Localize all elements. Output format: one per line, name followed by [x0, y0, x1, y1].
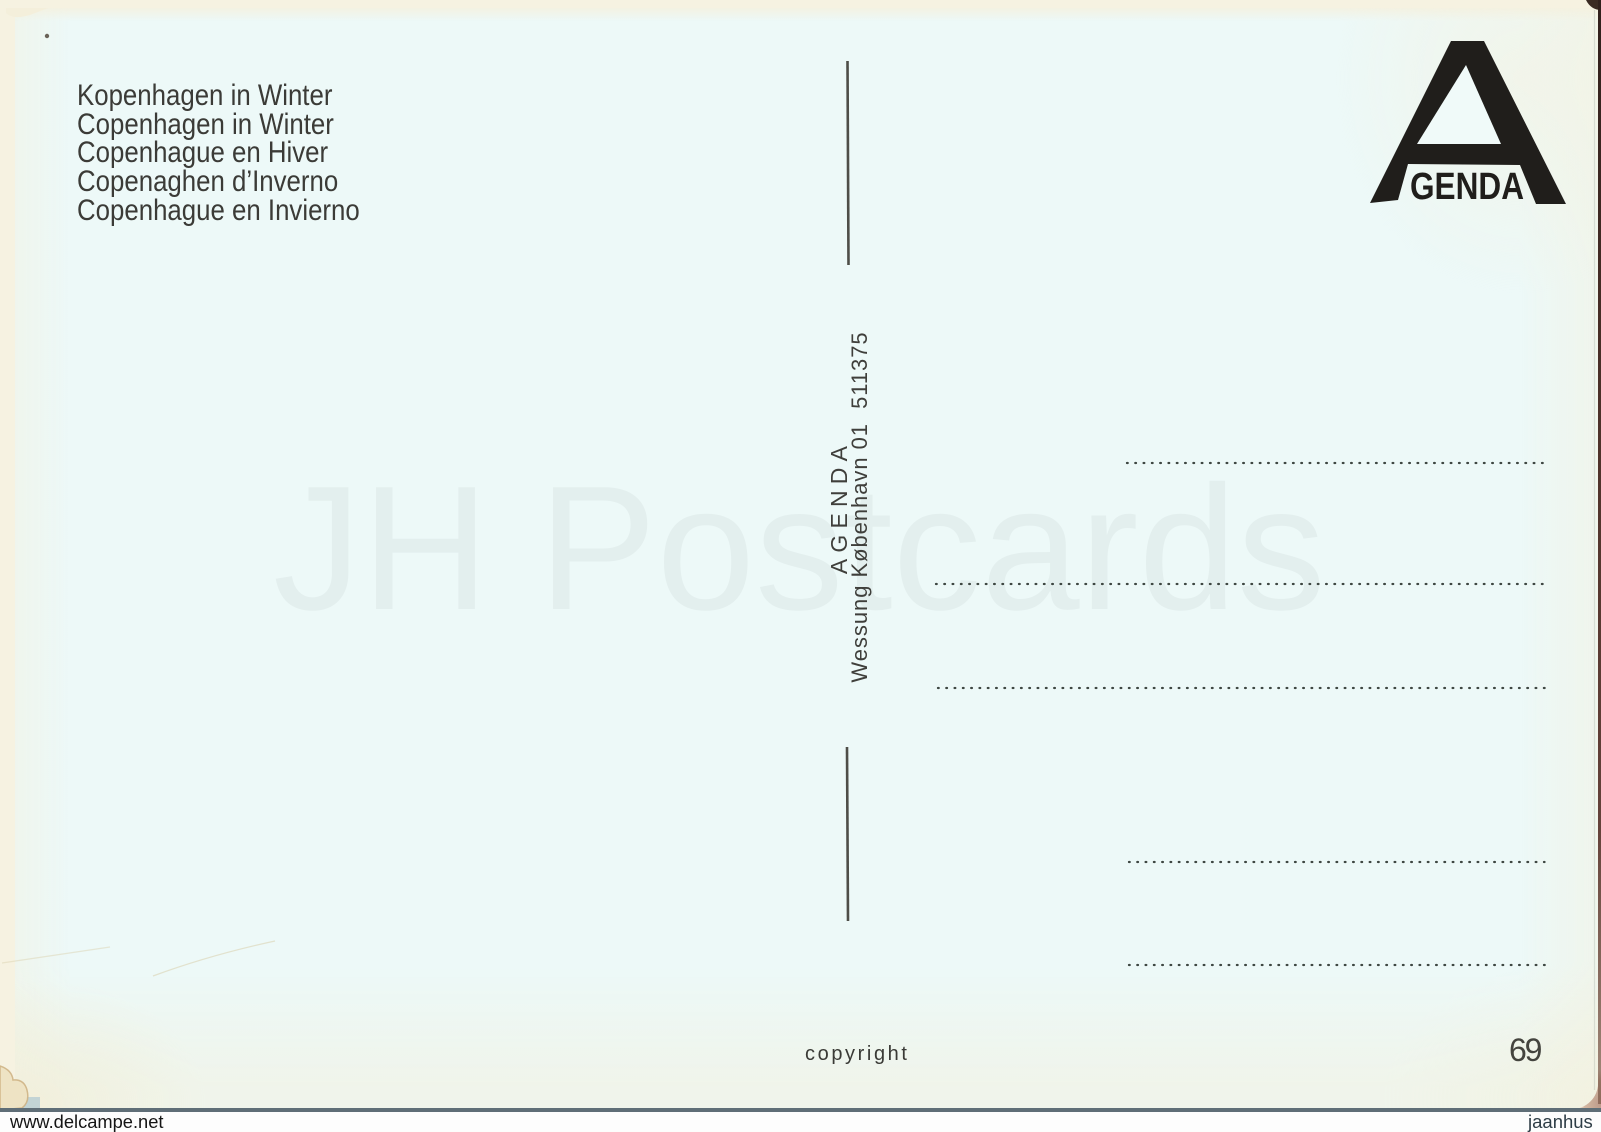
- svg-text:GENDA: GENDA: [1410, 166, 1524, 208]
